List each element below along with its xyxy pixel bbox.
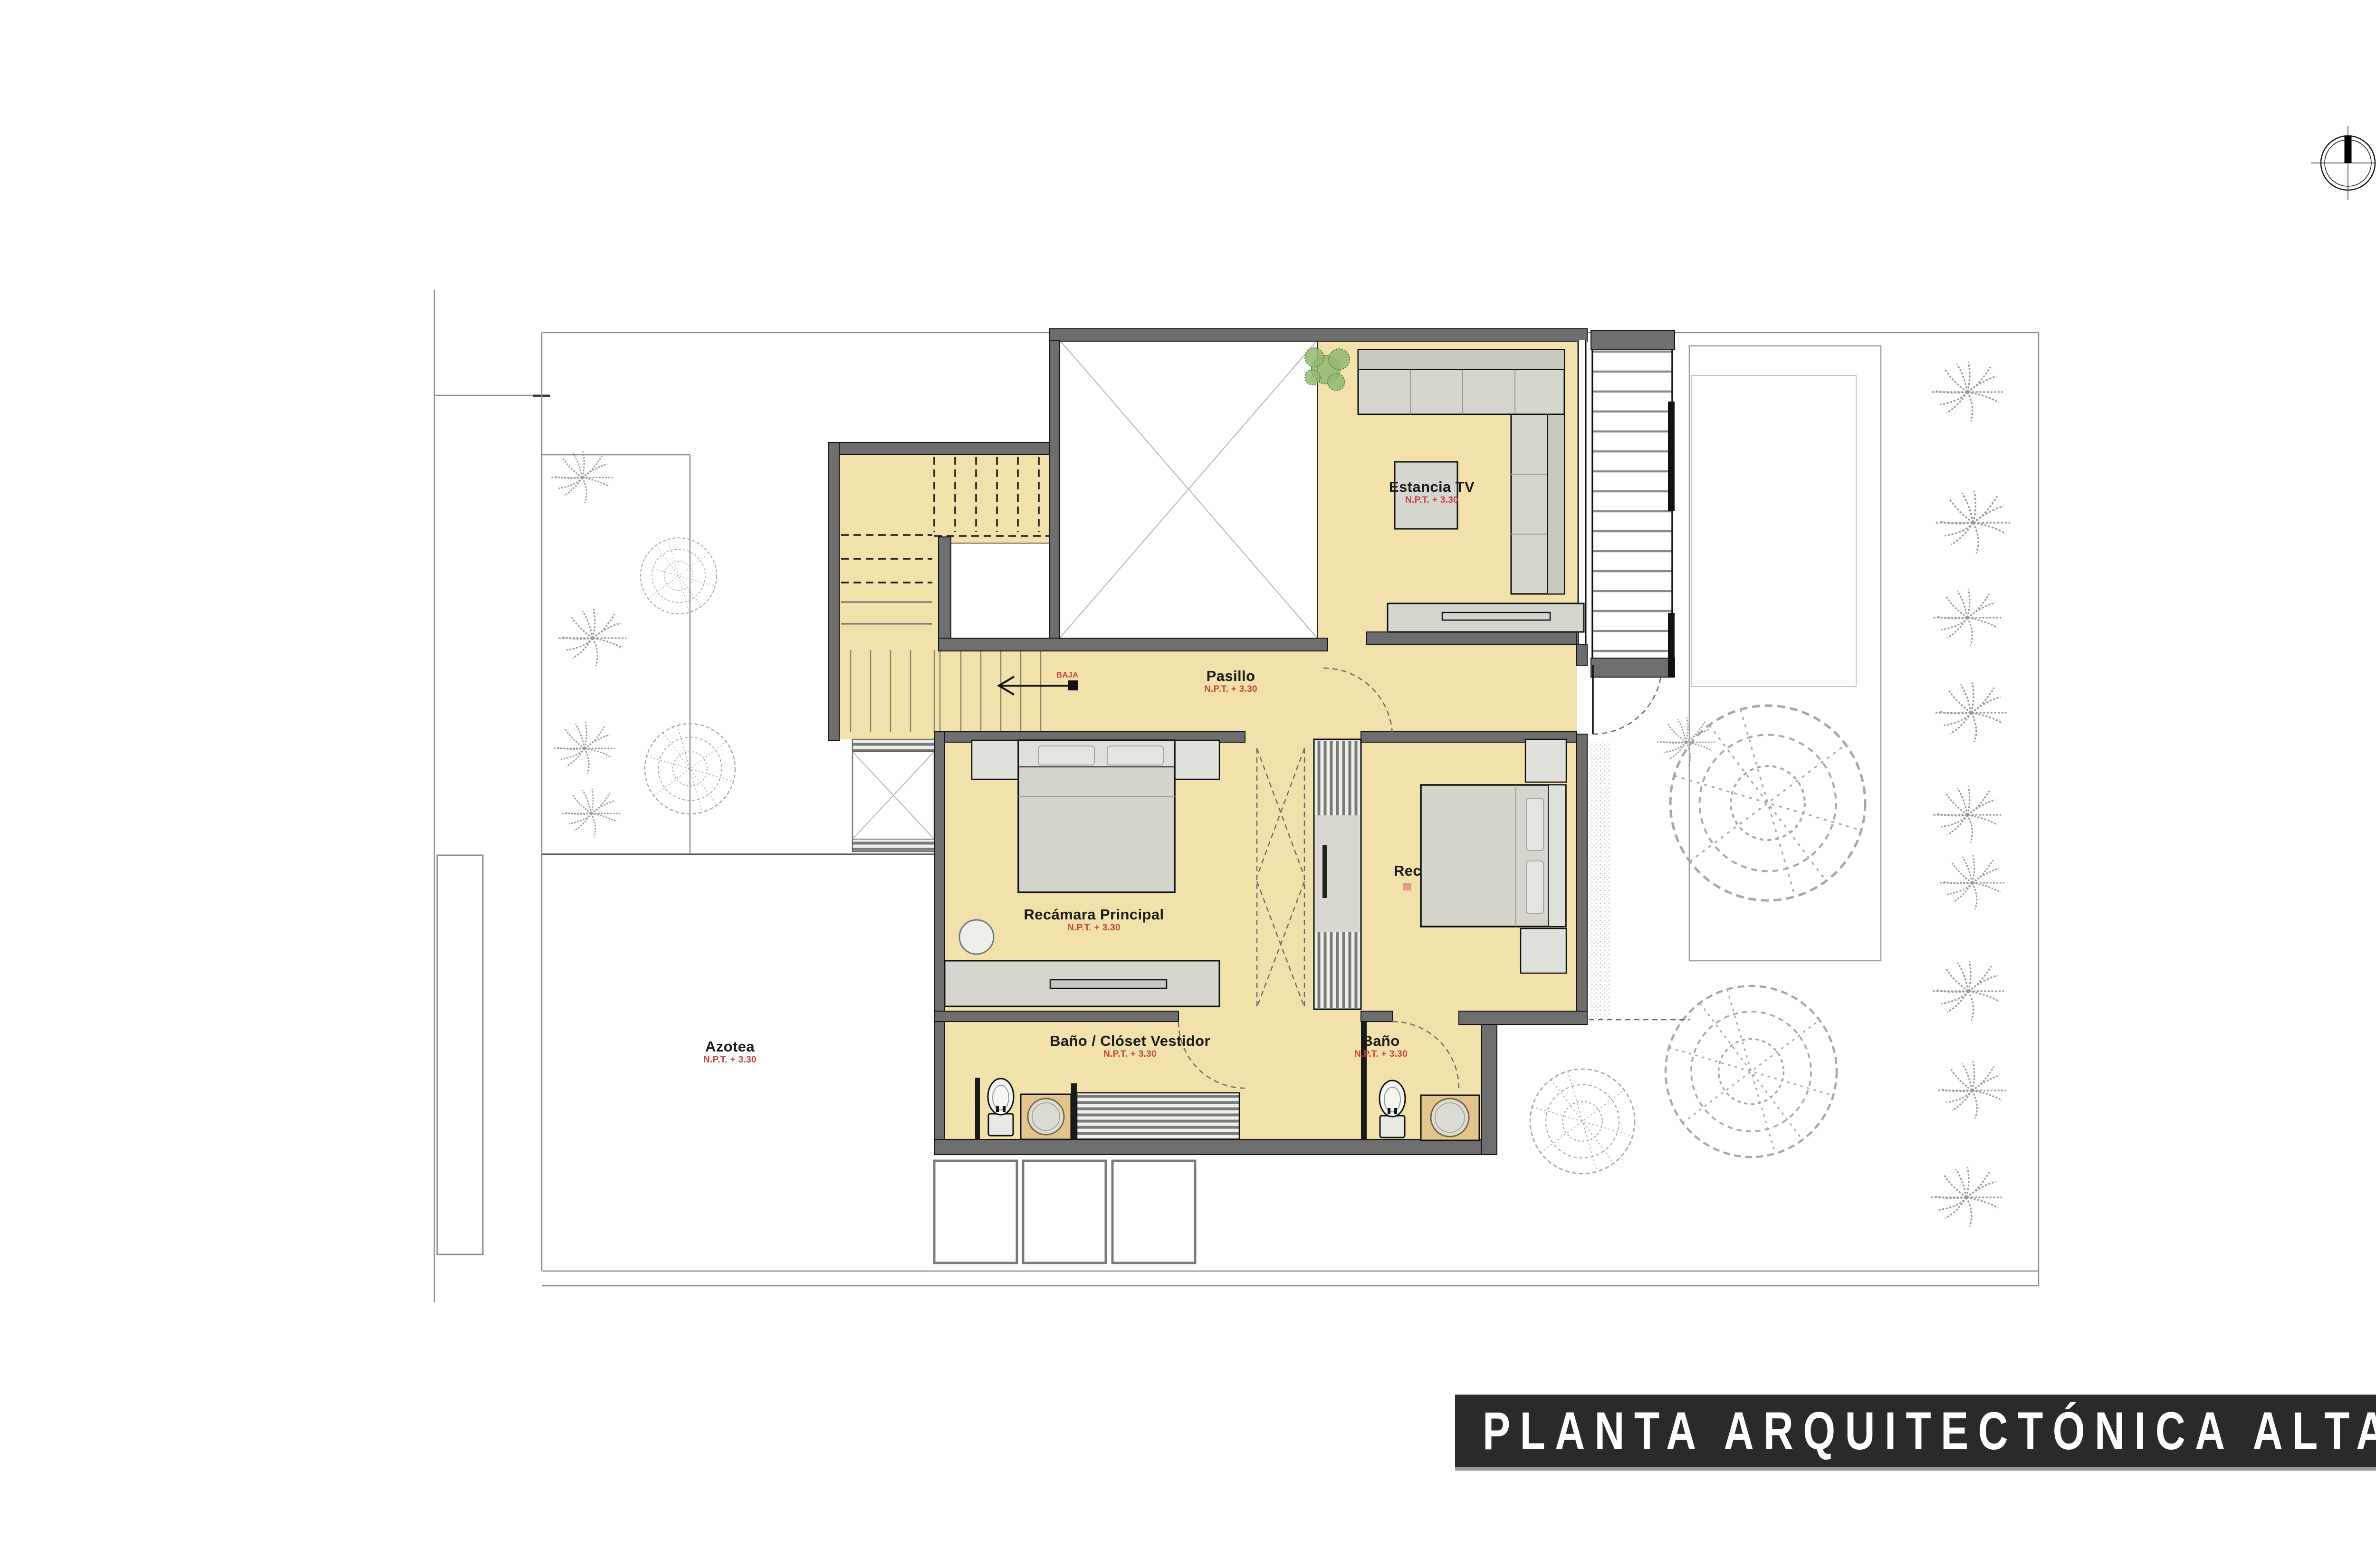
lower-roof-skylights — [934, 1161, 1195, 1263]
stair-direction-label: BAJA — [1056, 670, 1078, 680]
north-arrow-icon — [2311, 126, 2376, 200]
hall-sideboard — [1388, 603, 1584, 632]
title-bar: PLANTA ARQUITECTÓNICA ALTA — [1455, 1395, 2376, 1471]
sheet-title: PLANTA ARQUITECTÓNICA ALTA — [1483, 1400, 2376, 1462]
planter-wall — [437, 855, 483, 1254]
room-label-bano: Baño N.P.T. + 3.30 — [1354, 1033, 1408, 1060]
pergola-deck — [1591, 330, 1675, 677]
room-label-bano-closet: Baño / Clóset Vestidor N.P.T. + 3.30 — [1050, 1033, 1210, 1060]
closet-louver — [1314, 739, 1361, 1009]
floor-plan-sheet: Estancia TV N.P.T. + 3.30 Pasillo N.P.T.… — [0, 0, 2376, 1568]
pouf — [959, 920, 994, 954]
room-label-recamara-principal: Recámara Principal N.P.T. + 3.30 — [1024, 907, 1164, 933]
room-label-recamara-secundaria: Rec — [1394, 863, 1421, 879]
clipped-level-text — [1403, 883, 1411, 890]
dresser — [945, 961, 1219, 1006]
floor-plan-drawing — [0, 0, 2376, 1568]
edge-hatch — [1589, 742, 1611, 1020]
room-label-azotea: Azotea N.P.T. + 3.30 — [703, 1039, 757, 1065]
shaft-x — [853, 739, 934, 851]
room-label-estancia-tv: Estancia TV N.P.T. + 3.30 — [1389, 479, 1475, 506]
room-label-pasillo: Pasillo N.P.T. + 3.30 — [1204, 668, 1257, 695]
estancia-window — [1577, 340, 1587, 644]
